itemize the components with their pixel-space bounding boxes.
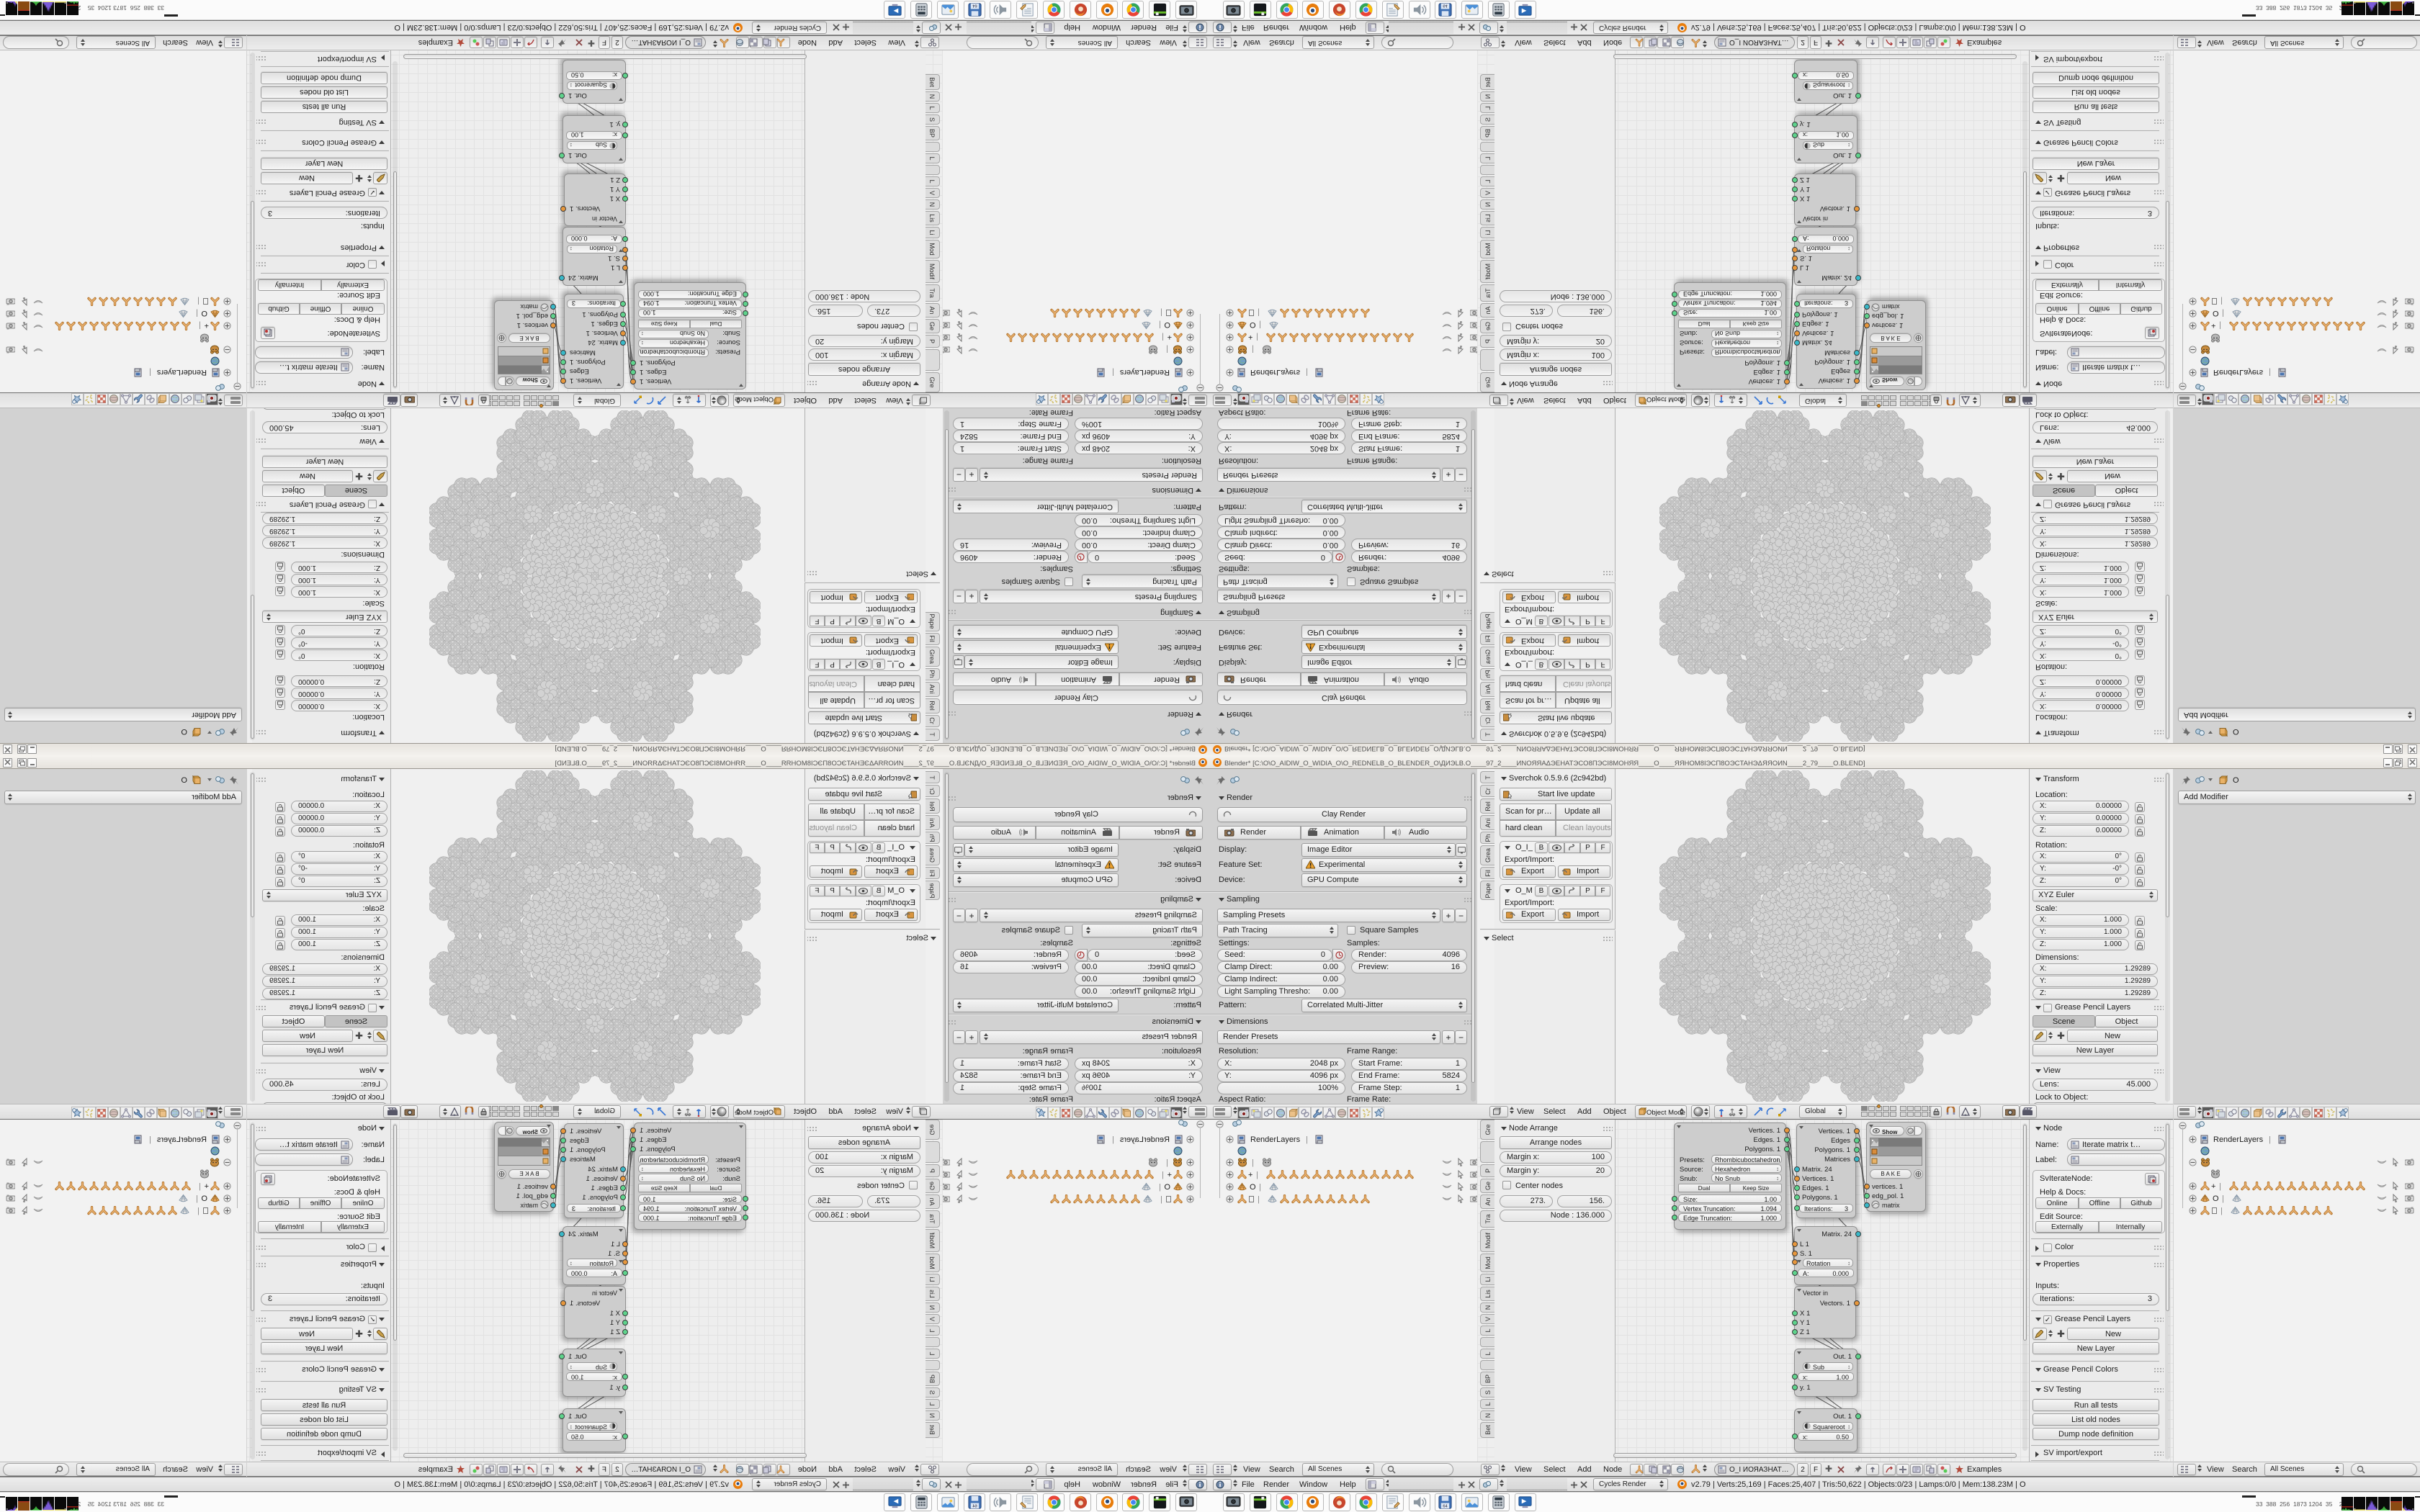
svg-text:64: 64	[1443, 1505, 1448, 1509]
